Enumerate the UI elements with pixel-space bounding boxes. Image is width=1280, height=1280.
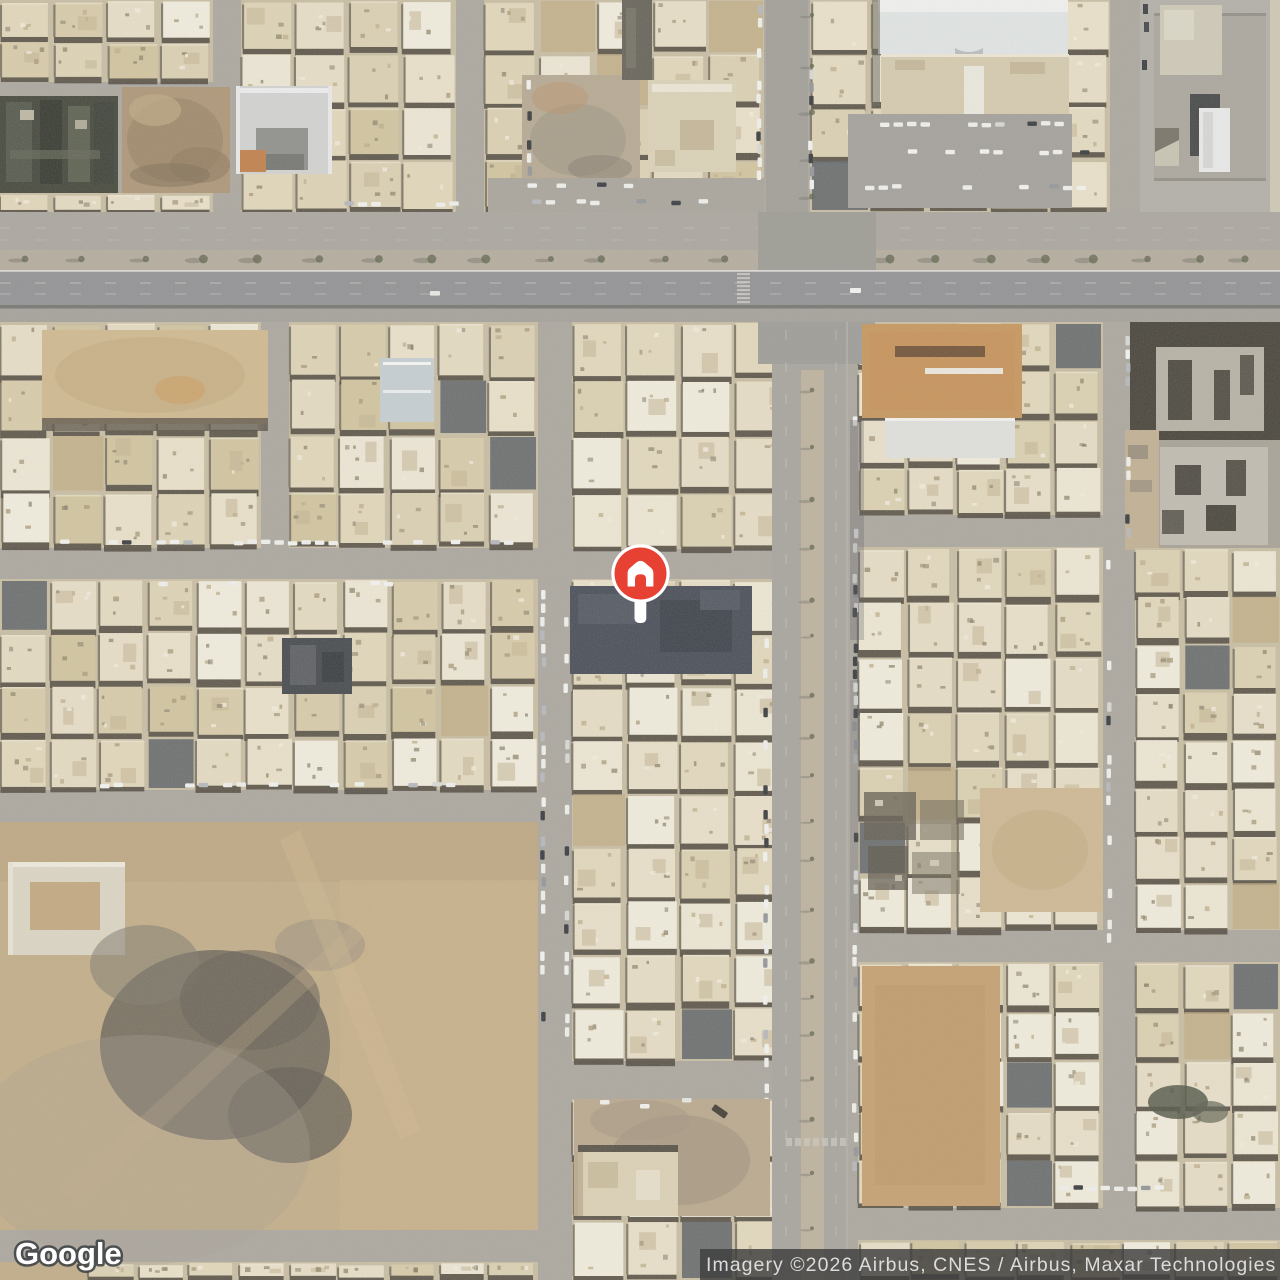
svg-text:Imagery ©2026 Airbus, CNES / A: Imagery ©2026 Airbus, CNES / Airbus, Max…: [706, 1254, 1276, 1276]
svg-text:Google: Google: [15, 1236, 122, 1271]
